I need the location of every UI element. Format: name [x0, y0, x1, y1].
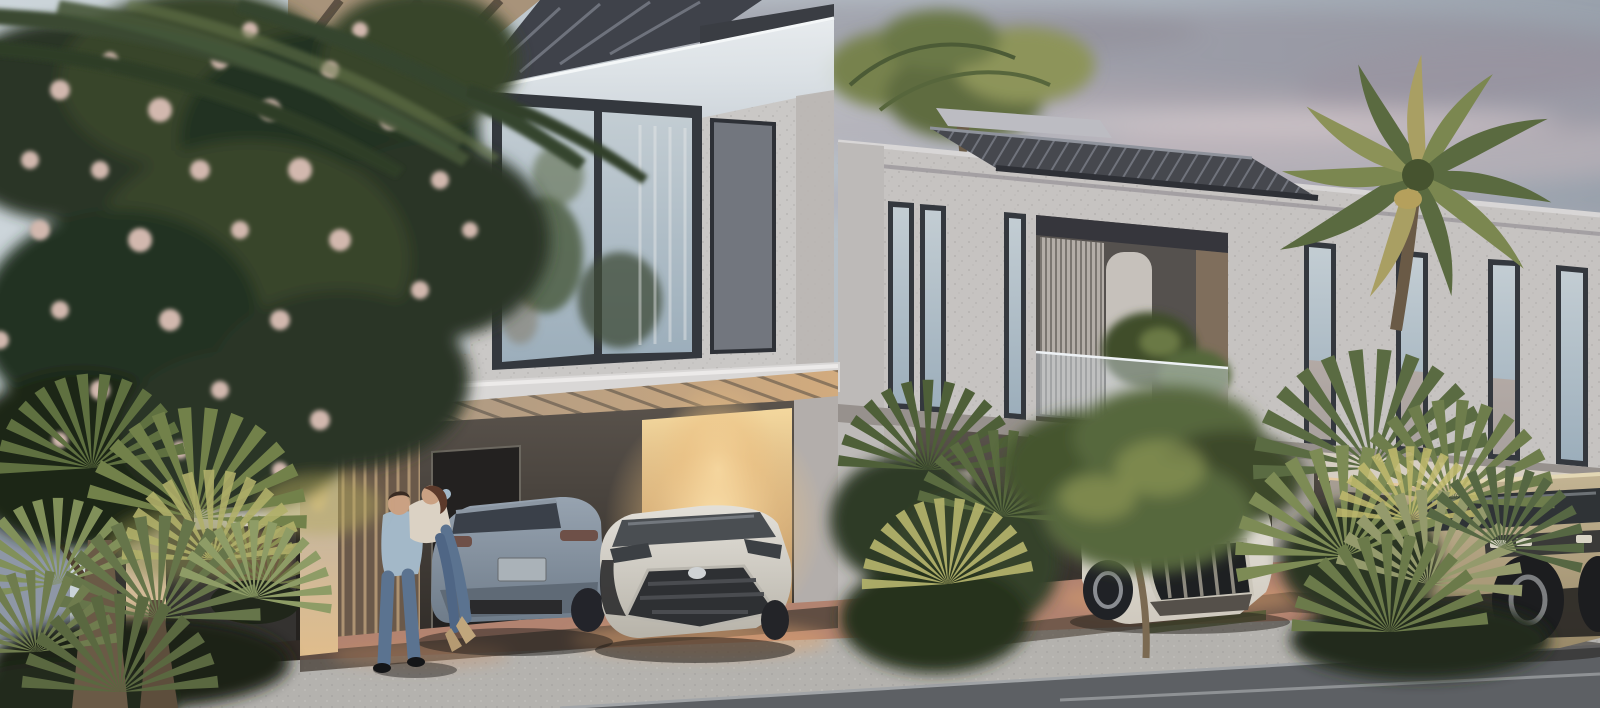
man-legs: [384, 577, 388, 662]
scene-canvas: [0, 0, 1600, 708]
crossover-badge: [688, 567, 706, 579]
crossover-wheel: [761, 600, 789, 640]
suv-wheel: [571, 588, 605, 632]
dark-panel: [712, 120, 774, 352]
architectural-render: [0, 0, 1600, 708]
suv-taillight-right: [560, 530, 598, 541]
suv-plate: [498, 558, 546, 581]
